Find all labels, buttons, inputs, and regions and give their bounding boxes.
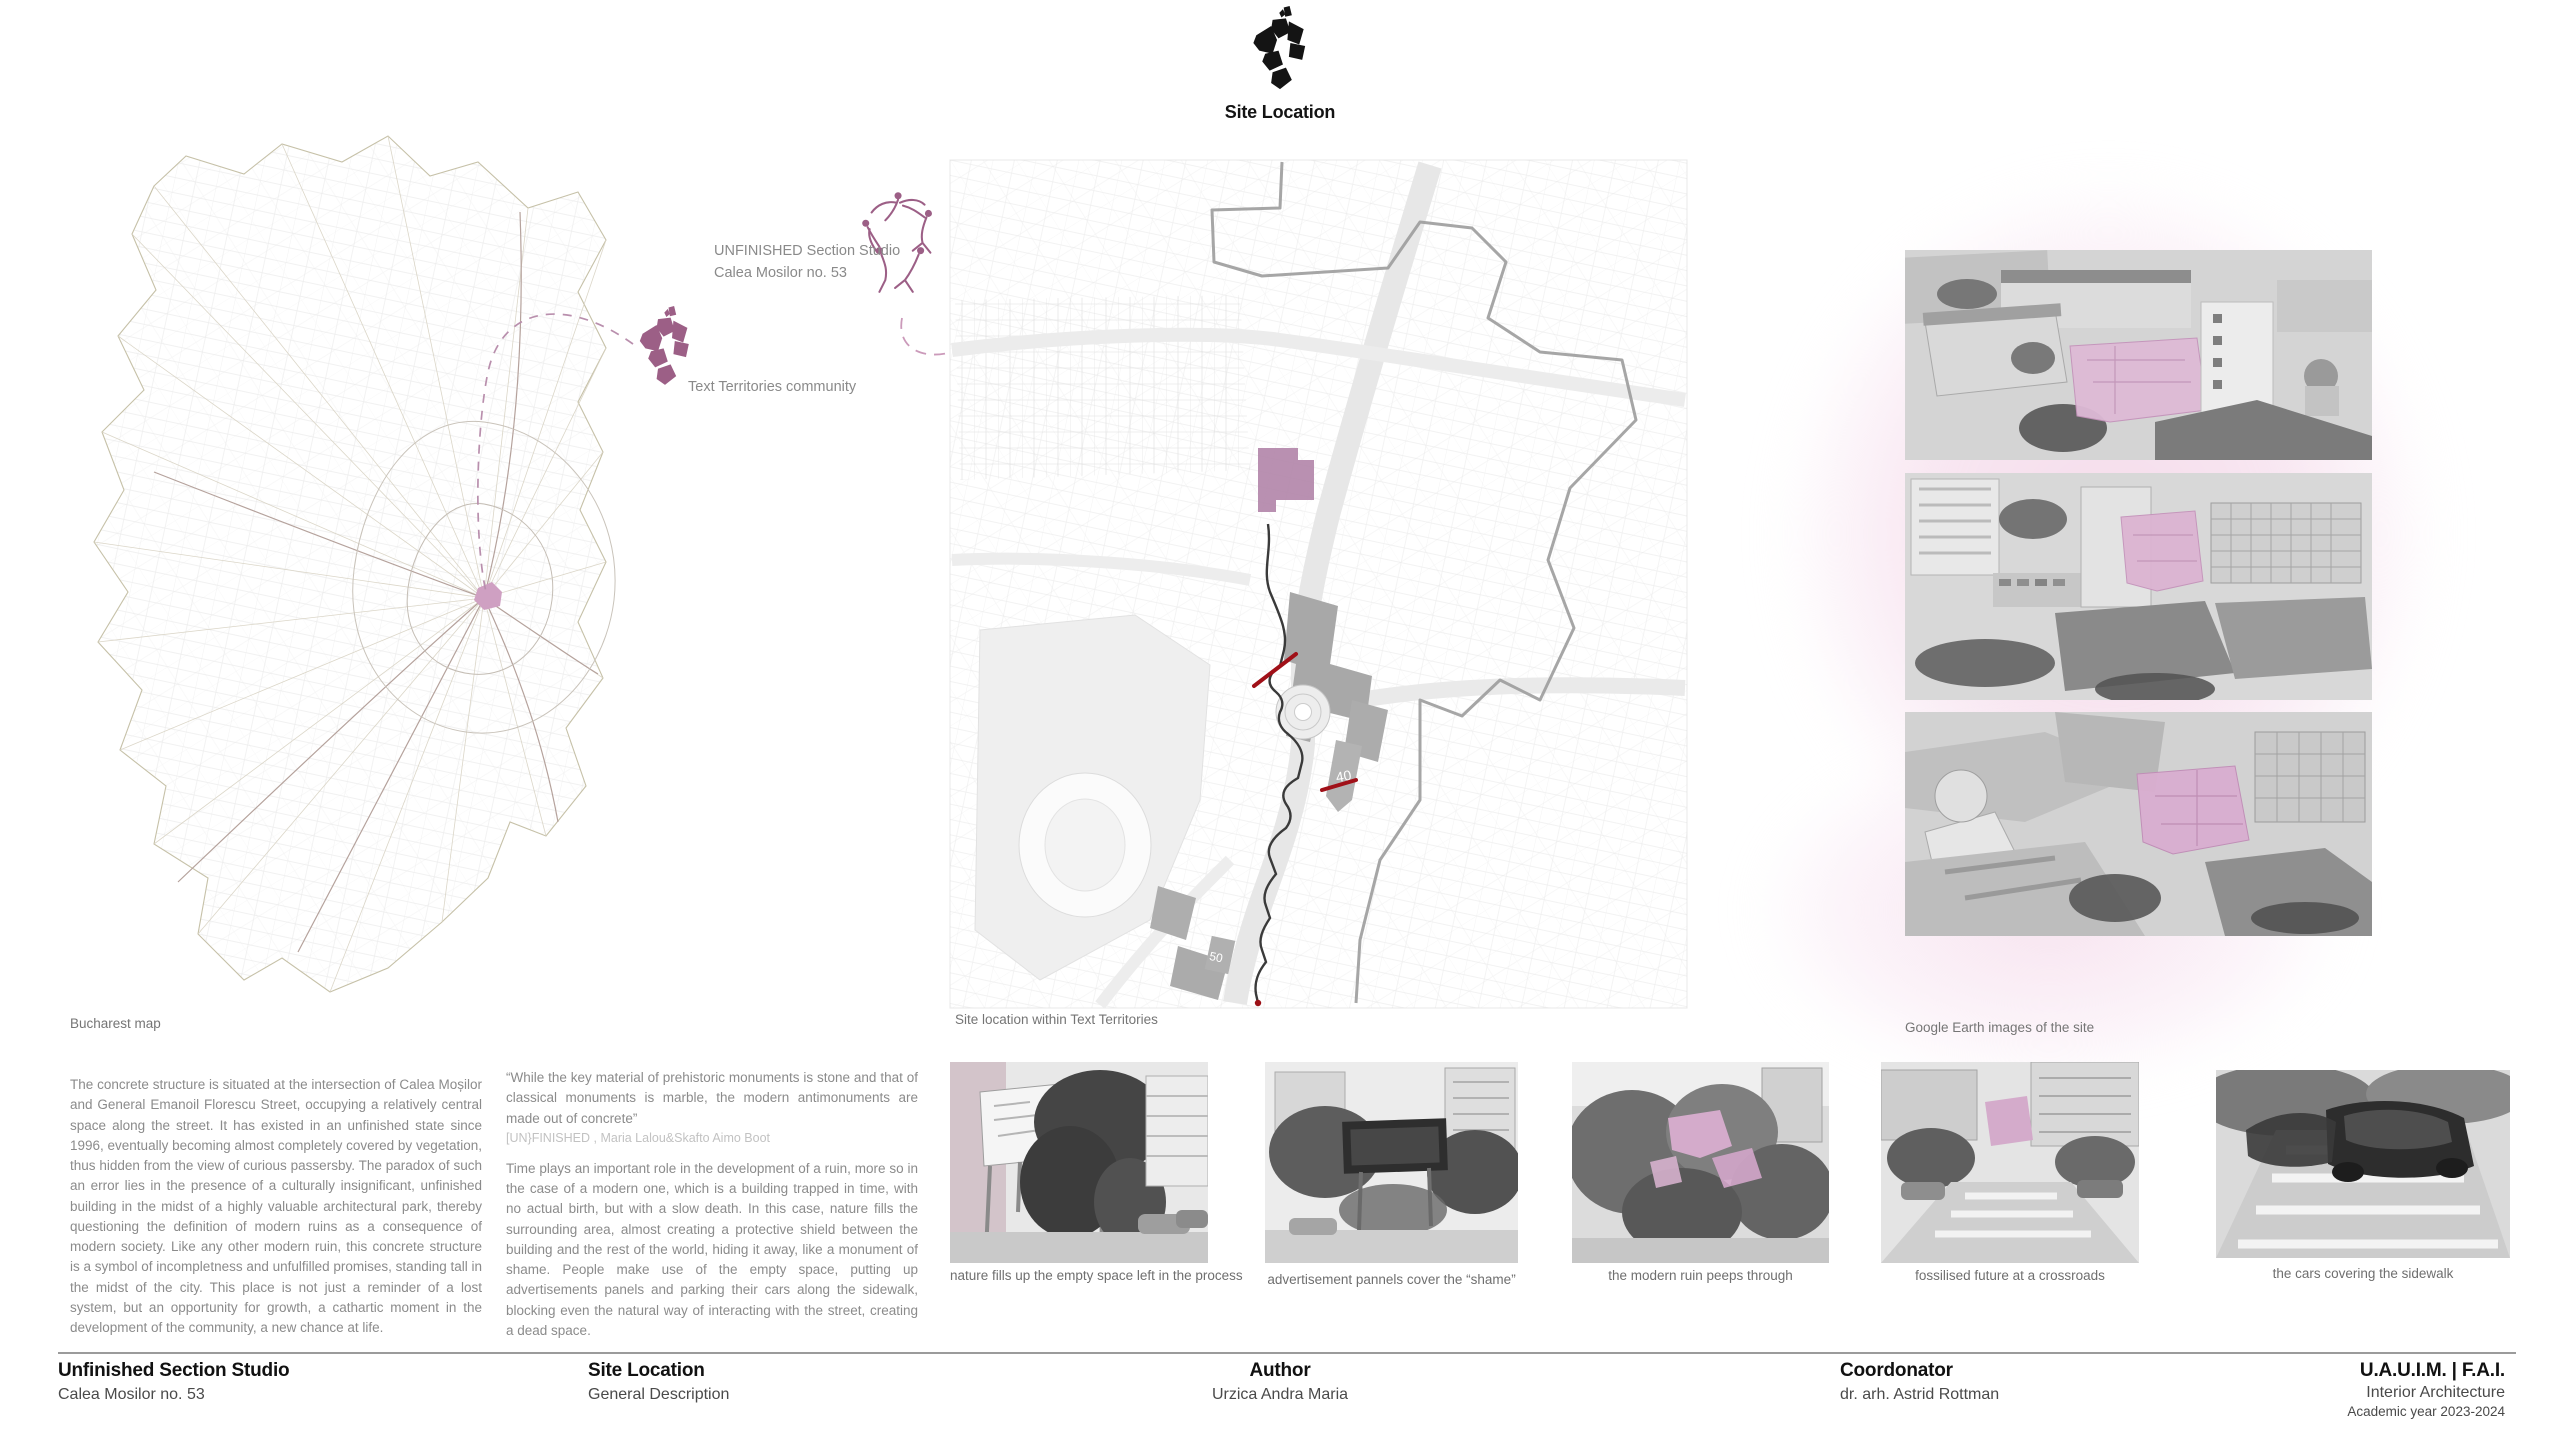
footer-coordinator-subtitle: dr. arh. Astrid Rottman (1840, 1386, 1999, 1404)
studio-annotation-line2: Calea Mosilor no. 53 (714, 262, 900, 284)
header-logo-icon (1253, 6, 1305, 89)
street-photo-4-pink-patch (1985, 1096, 2033, 1146)
footer-institution-name: U.A.U.I.M. | F.A.I. (2200, 1360, 2505, 1382)
body-paragraph-1: The concrete structure is situated at th… (70, 1075, 482, 1338)
aerial-site-highlight-2 (2121, 511, 2203, 591)
footer-section-title: Site Location (588, 1360, 729, 1382)
quote-block: “While the key material of prehistoric m… (506, 1068, 918, 1341)
street-photo-3-caption: the modern ruin peeps through (1572, 1268, 1829, 1283)
street-photo-4-caption: fossilised future at a crossroads (1881, 1268, 2139, 1283)
bucharest-map-caption: Bucharest map (70, 1016, 161, 1031)
footer-column-studio: Unfinished Section Studio Calea Mosilor … (58, 1360, 289, 1404)
street-photo-5-caption: the cars covering the sidewalk (2216, 1266, 2510, 1281)
footer-column-coordinator: Coordonator dr. arh. Astrid Rottman (1840, 1360, 1999, 1404)
aerial-site-highlight-3 (2137, 766, 2249, 854)
studio-annotation-line1: UNFINISHED Section Studio (714, 240, 900, 262)
quote-text: “While the key material of prehistoric m… (506, 1068, 918, 1129)
body-paragraph-2: Time plays an important role in the deve… (506, 1159, 918, 1341)
footer-column-section: Site Location General Description (588, 1360, 729, 1404)
footer-author-subtitle: Urzica Andra Maria (1180, 1386, 1380, 1404)
site-map-drawing: 40 50 (950, 160, 1687, 1008)
street-photo-5 (2216, 1070, 2510, 1258)
street-photo-3 (1572, 1062, 1829, 1263)
street-photo-4 (1881, 1062, 2139, 1263)
community-label: Text Territories community (688, 376, 856, 398)
footer-studio-title: Unfinished Section Studio (58, 1360, 289, 1382)
footer-studio-subtitle: Calea Mosilor no. 53 (58, 1386, 289, 1404)
aerial-photo-1 (1905, 250, 2372, 460)
quote-attribution: [UN}FINISHED , Maria Lalou&Skafto Aimo B… (506, 1131, 918, 1145)
aerial-photo-2 (1905, 473, 2372, 700)
street-photo-1-caption: nature fills up the empty space left in … (950, 1268, 1250, 1283)
google-earth-caption: Google Earth images of the site (1905, 1020, 2094, 1035)
footer-divider (58, 1352, 2516, 1354)
footer-institution: U.A.U.I.M. | F.A.I. Interior Architectur… (2200, 1360, 2505, 1419)
footer-coordinator-title: Coordonator (1840, 1360, 1999, 1382)
footer-column-author: Author Urzica Andra Maria (1180, 1360, 1380, 1404)
footer-institution-program: Interior Architecture (2200, 1384, 2505, 1402)
aerial-site-highlight-1 (2070, 338, 2207, 422)
page-title: Site Location (1150, 102, 1410, 123)
footer-section-subtitle: General Description (588, 1386, 729, 1404)
studio-annotation: UNFINISHED Section Studio Calea Mosilor … (714, 240, 900, 285)
aerial-photo-3 (1905, 712, 2372, 936)
text-territories-polygon (640, 306, 689, 385)
site-map-caption: Site location within Text Territories (955, 1012, 1158, 1027)
footer-author-title: Author (1180, 1360, 1380, 1382)
street-photo-1 (950, 1062, 1208, 1263)
footer-institution-year: Academic year 2023-2024 (2200, 1404, 2505, 1419)
street-photo-2 (1265, 1062, 1518, 1263)
presentation-board: 40 50 Site Location UNFINISHED Section S… (0, 0, 2560, 1441)
street-photo-2-caption: advertisement pannels cover the “shame” (1265, 1272, 1518, 1287)
bucharest-map-drawing (58, 122, 618, 1010)
